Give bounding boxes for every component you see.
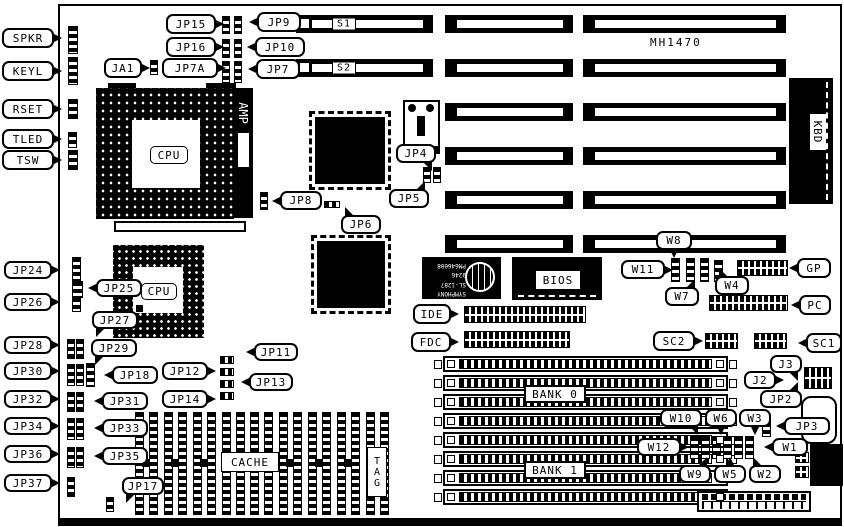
- callout-jp26: JP26: [4, 293, 52, 311]
- callout-jp28: JP28: [4, 336, 52, 354]
- jumper-w3: [745, 436, 754, 459]
- jp34-jumper: [67, 418, 75, 440]
- slot-s2: S2: [296, 59, 433, 77]
- cache-chip: [308, 412, 331, 515]
- jp7-jumper: [234, 61, 242, 83]
- isa-slot: [583, 59, 786, 77]
- board-bottom-edge: [58, 518, 842, 526]
- fdc-connector: [464, 331, 570, 348]
- callout-w12: W12: [637, 438, 681, 456]
- callout-jp12: JP12: [162, 362, 208, 380]
- globe-logo: [465, 262, 495, 292]
- callout-w9: W9: [679, 465, 711, 483]
- callout-gp: GP: [797, 258, 831, 278]
- callout-sc2: SC2: [653, 331, 695, 351]
- jp30-jumper: [67, 364, 75, 386]
- ja1-jumper: [150, 60, 158, 75]
- cache-chip: [337, 412, 360, 515]
- tled-header: [68, 132, 77, 148]
- jumper-w12: [690, 436, 699, 459]
- power-connector: [697, 491, 811, 512]
- jumper-w7: [700, 258, 709, 282]
- isa-slot: [445, 59, 573, 77]
- jumper-w6: [723, 436, 732, 459]
- keyboard-connector: KBD: [789, 78, 833, 204]
- callout-jp17: JP17: [122, 477, 164, 495]
- isa-slot: [583, 191, 786, 209]
- jp10-jumper: [234, 39, 242, 58]
- qfp-chip-1: [315, 117, 385, 184]
- cache-chip: [279, 412, 302, 515]
- callout-w6: W6: [705, 409, 737, 427]
- callout-jp27: JP27: [92, 311, 138, 329]
- slot-s1-label: S1: [332, 18, 356, 31]
- callout-fdc: FDC: [411, 332, 451, 352]
- callout-jp7: JP7: [256, 59, 300, 79]
- chipset-symphony: SYMPHONY SL-1287 9246 PM646008: [422, 257, 501, 299]
- gp-connector: [737, 260, 788, 276]
- keyl-header: [68, 57, 78, 85]
- jp5-jumper-b: [433, 167, 441, 183]
- slot-s2-label: S2: [332, 62, 356, 75]
- jp28-jumper: [67, 339, 75, 359]
- jp4-component: [403, 100, 440, 150]
- isa-slot: [583, 15, 786, 33]
- jp14-jumper: [220, 392, 234, 400]
- bank0-label: BANK 0: [524, 385, 586, 403]
- callout-jp32: JP32: [4, 390, 52, 408]
- callout-jp37: JP37: [4, 474, 52, 492]
- callout-jp34: JP34: [4, 417, 52, 435]
- cache-chip: [164, 412, 187, 515]
- callout-jp15: JP15: [166, 14, 216, 34]
- callout-w10: W10: [660, 409, 702, 427]
- jp32-jumper: [67, 392, 75, 412]
- small-connector: [795, 466, 809, 478]
- motherboard-diagram: MH1470 S1 S2 KBD CPU AMP CPU: [0, 0, 844, 527]
- callout-jp36: JP36: [4, 445, 52, 463]
- sc2-connector: [705, 333, 738, 349]
- jp36-jumper: [67, 447, 75, 468]
- jp37-header: [67, 477, 75, 497]
- pc-connector: [709, 295, 788, 311]
- sc1-connector: [754, 333, 787, 349]
- callout-jp14: JP14: [162, 390, 208, 408]
- callout-w5: W5: [714, 465, 746, 483]
- jp33-jumper: [76, 418, 84, 440]
- isa-slot: [445, 103, 573, 121]
- jumper-w10: [701, 436, 710, 459]
- isa-slot: [445, 235, 573, 253]
- jp9-jumper: [234, 16, 242, 34]
- jp6-jumper: [324, 201, 340, 208]
- callout-jp5: JP5: [389, 189, 429, 208]
- board-model-text: MH1470: [650, 36, 740, 49]
- isa-slot: [445, 147, 573, 165]
- simm-socket: [443, 356, 728, 372]
- socket-lever: [114, 221, 246, 232]
- callout-jp10: JP10: [255, 37, 305, 57]
- spkr-header: [68, 26, 78, 54]
- callout-tled: TLED: [2, 129, 54, 149]
- callout-jp29: JP29: [91, 339, 137, 357]
- callout-j3: J3: [770, 355, 802, 373]
- bios-chip: BIOS: [512, 257, 602, 300]
- callout-w2: W2: [749, 465, 781, 483]
- jp24-header: [72, 257, 81, 283]
- j2-j3-jp2-block: [804, 367, 832, 389]
- callout-jp16: JP16: [166, 37, 216, 57]
- callout-jp18: JP18: [112, 366, 158, 384]
- callout-jp3: JP3: [784, 417, 830, 435]
- callout-jp30: JP30: [4, 362, 52, 380]
- edge-connector: [810, 444, 843, 486]
- jp13-jumper: [220, 380, 234, 388]
- ide-connector: [464, 306, 586, 323]
- callout-jp11: JP11: [254, 343, 298, 361]
- slot-s1: S1: [296, 15, 433, 33]
- jumper-w5: [734, 436, 743, 459]
- callout-keyl: KEYL: [2, 61, 54, 81]
- callout-w7: W7: [665, 287, 699, 306]
- jp29-jumper: [76, 364, 84, 386]
- jp25-jumper: [72, 281, 83, 298]
- callout-pc: PC: [799, 295, 831, 315]
- jp27-jumper: [76, 339, 84, 359]
- callout-jp33: JP33: [102, 419, 148, 437]
- pin1-dot: [136, 305, 143, 312]
- callout-w1: W1: [772, 438, 808, 456]
- jp35-jumper: [76, 447, 84, 468]
- rset-header: [68, 99, 78, 119]
- jp31-jumper: [76, 392, 84, 412]
- amp-label: AMP: [236, 96, 250, 130]
- jp8-jumper: [260, 192, 268, 210]
- callout-jp6: JP6: [341, 215, 381, 234]
- cpu1-label: CPU: [150, 146, 188, 164]
- callout-sc1: SC1: [806, 333, 842, 353]
- isa-slot: [445, 15, 573, 33]
- bank1-label: BANK 1: [524, 461, 586, 479]
- cache-label: CACHE: [221, 452, 279, 472]
- isa-slot: [583, 103, 786, 121]
- callout-ja1: JA1: [104, 58, 142, 78]
- callout-w8: W8: [656, 231, 692, 250]
- tsw-header: [68, 150, 78, 170]
- tag-label: TAG: [367, 447, 387, 497]
- callout-jp7a: JP7A: [162, 58, 218, 78]
- callout-w4: W4: [715, 276, 749, 295]
- jp18-header: [86, 363, 95, 387]
- bios-label: BIOS: [536, 271, 580, 289]
- isa-slot: [583, 147, 786, 165]
- callout-jp25: JP25: [96, 279, 142, 297]
- callout-tsw: TSW: [2, 150, 54, 170]
- amp-regulator: AMP: [234, 88, 253, 218]
- jp26-header: [72, 297, 81, 312]
- qfp-chip-2: [317, 241, 385, 308]
- callout-jp4: JP4: [396, 144, 436, 163]
- cache-chip: [193, 412, 216, 515]
- callout-jp35: JP35: [102, 447, 148, 465]
- jp12-jumper: [220, 368, 234, 376]
- callout-ide: IDE: [413, 304, 451, 324]
- callout-jp2: JP2: [760, 390, 802, 408]
- cpu2-label: CPU: [141, 283, 177, 300]
- callout-w3: W3: [739, 409, 771, 427]
- callout-jp31: JP31: [102, 392, 148, 410]
- callout-w11: W11: [621, 260, 665, 279]
- isa-slot: [445, 191, 573, 209]
- jp17-jumper: [106, 497, 114, 512]
- jp11-jumper: [220, 356, 234, 364]
- callout-j2: J2: [744, 371, 776, 389]
- simm-socket: [443, 489, 728, 505]
- callout-jp8: JP8: [280, 191, 322, 210]
- callout-jp24: JP24: [4, 261, 52, 279]
- callout-rset: RSET: [2, 99, 54, 119]
- callout-spkr: SPKR: [2, 28, 54, 48]
- callout-jp9: JP9: [257, 12, 301, 32]
- kbd-label: KBD: [810, 114, 826, 150]
- callout-jp13: JP13: [249, 373, 293, 391]
